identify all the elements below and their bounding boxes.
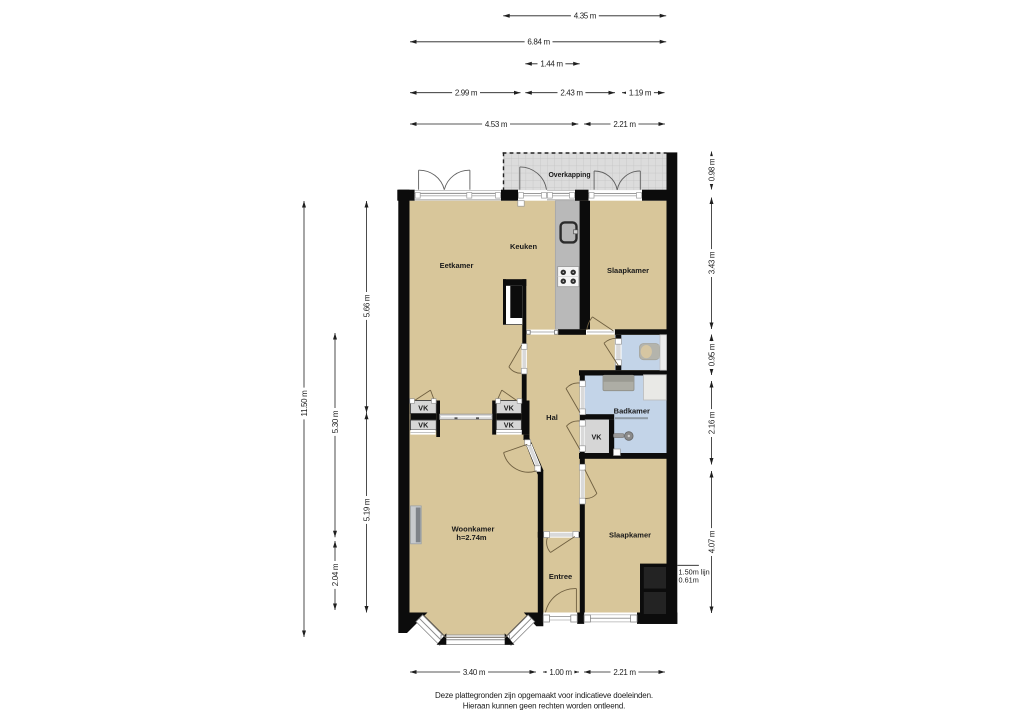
svg-text:2.21 m: 2.21 m [613,120,636,129]
svg-text:Overkapping: Overkapping [548,172,590,179]
svg-text:VK: VK [418,421,429,430]
svg-text:VK: VK [504,403,515,412]
svg-text:1.19 m: 1.19 m [629,89,652,98]
svg-text:4.07 m: 4.07 m [707,530,716,553]
svg-text:2.21 m: 2.21 m [613,668,636,677]
svg-text:2.16 m: 2.16 m [707,411,716,434]
svg-text:Slaapkamer: Slaapkamer [609,530,651,539]
svg-text:VK: VK [418,403,429,412]
svg-text:Hieraan kunnen geen rechten wo: Hieraan kunnen geen rechten worden ontle… [463,701,625,710]
svg-text:Hal: Hal [546,413,558,422]
svg-text:3.40 m: 3.40 m [463,668,486,677]
svg-text:5.66 m: 5.66 m [362,294,371,317]
svg-text:0.95 m: 0.95 m [707,343,716,366]
svg-text:Deze plattegronden zijn opgema: Deze plattegronden zijn opgemaakt voor i… [435,691,653,700]
svg-text:1.44 m: 1.44 m [540,60,563,69]
svg-text:Entree: Entree [549,572,572,581]
svg-text:Eetkamer: Eetkamer [440,261,474,270]
svg-text:0.61m: 0.61m [679,575,699,584]
svg-text:VK: VK [592,432,603,441]
svg-text:h=2.74m: h=2.74m [456,533,487,542]
svg-text:4.53 m: 4.53 m [485,120,508,129]
svg-text:Slaapkamer: Slaapkamer [607,266,649,275]
svg-text:2.04 m: 2.04 m [331,563,340,586]
svg-text:1.00 m: 1.00 m [549,668,572,677]
svg-text:4.35 m: 4.35 m [574,12,597,21]
svg-text:Badkamer: Badkamer [614,407,650,416]
svg-text:11.50 m: 11.50 m [300,390,309,417]
svg-text:5.19 m: 5.19 m [362,498,371,521]
svg-text:VK: VK [504,421,515,430]
svg-text:0.98 m: 0.98 m [707,158,716,181]
svg-text:2.43 m: 2.43 m [560,89,583,98]
svg-text:5.30 m: 5.30 m [331,410,340,433]
svg-text:3.43 m: 3.43 m [707,251,716,274]
svg-text:6.84 m: 6.84 m [527,38,550,47]
svg-text:2.99 m: 2.99 m [455,89,478,98]
svg-text:Keuken: Keuken [510,242,538,251]
